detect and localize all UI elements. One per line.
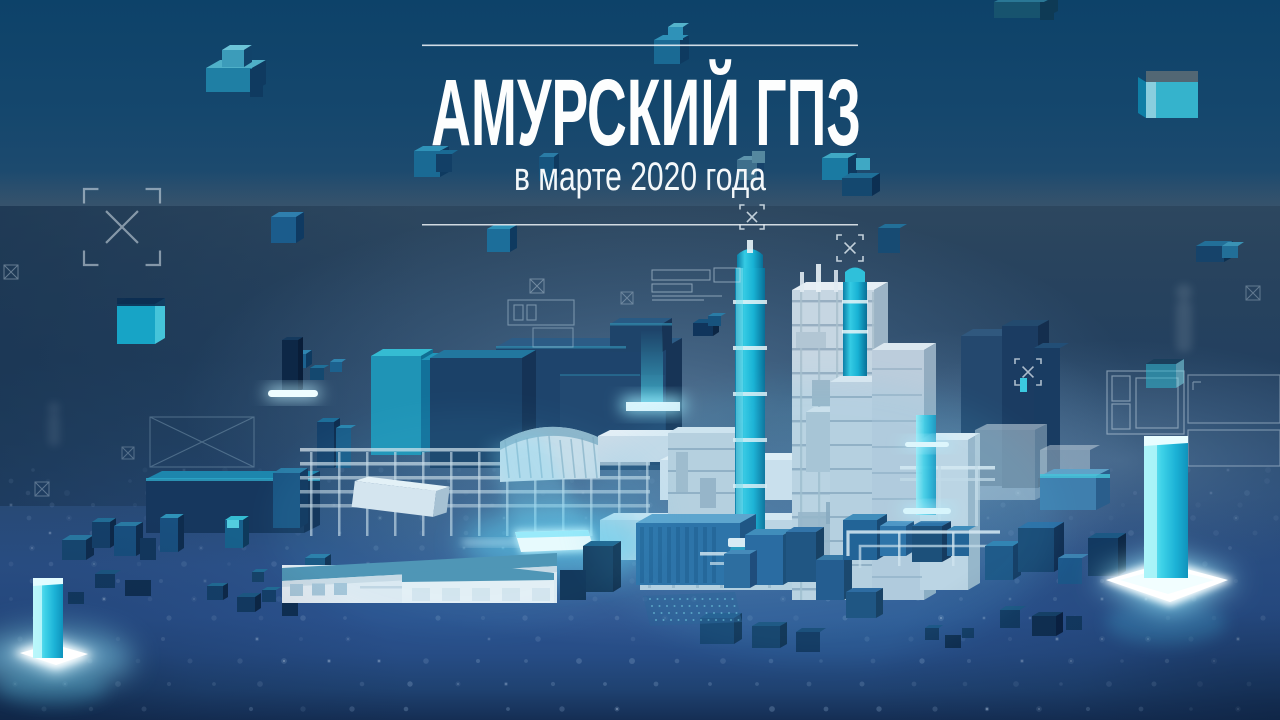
svg-text:в марте 2020 года: в марте 2020 года <box>514 155 767 199</box>
svg-text:АМУРСКИЙ ГПЗ: АМУРСКИЙ ГПЗ <box>431 59 861 166</box>
